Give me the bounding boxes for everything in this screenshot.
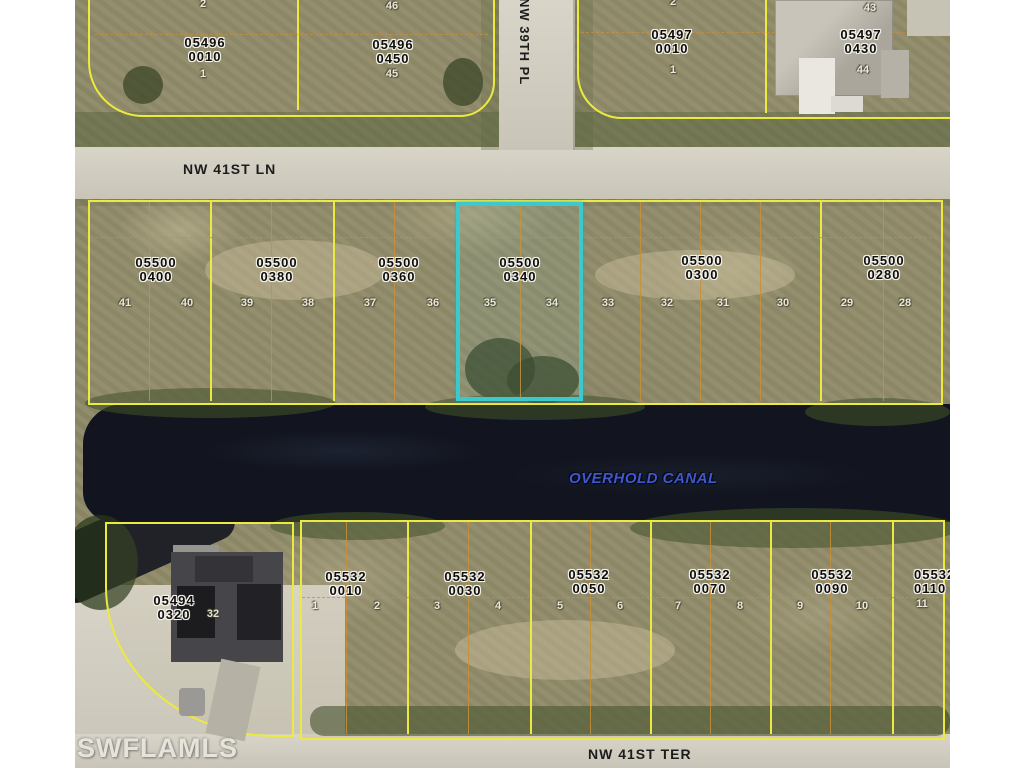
walkway-top-right (831, 96, 863, 112)
lot-number: 28 (890, 297, 920, 309)
house-roof-section-dark-2 (237, 584, 281, 640)
lot-number: 41 (110, 297, 140, 309)
lot-line (640, 202, 641, 401)
canal-label: OVERHOLD CANAL (569, 470, 718, 487)
parcel-line (892, 522, 894, 734)
parcel-line (770, 522, 772, 734)
car-bottom-left (179, 688, 205, 716)
lot-line (346, 522, 347, 734)
lot-number: 11 (907, 598, 937, 610)
lot-number: 43 (855, 2, 885, 14)
parcel-label: 054960010 (165, 36, 245, 64)
parcel-label: 055320090 (792, 568, 872, 596)
lot-line (700, 202, 701, 401)
parcel-label: 054970010 (632, 28, 712, 56)
lot-line (590, 522, 591, 734)
lot-number: 2 (188, 0, 218, 10)
lot-number: 1 (188, 68, 218, 80)
lot-number: 45 (377, 68, 407, 80)
lot-number: 7 (663, 600, 693, 612)
lot-number: 36 (418, 297, 448, 309)
house-roof-section-mid (195, 556, 253, 582)
parcel-line (650, 522, 652, 734)
lot-number: 2 (658, 0, 688, 8)
lot-line (830, 522, 831, 734)
lot-line-top-left-divider (297, 0, 299, 110)
setback-line-top-left (95, 34, 488, 35)
road-nw-39th-pl (499, 0, 575, 150)
lot-line (883, 202, 884, 401)
setback-line-bottom (302, 597, 939, 598)
lot-line (149, 202, 150, 401)
parcel-label: 054970430 (821, 28, 901, 56)
lot-number: 5 (545, 600, 575, 612)
street-label-nw-41st-ln: NW 41ST LN (183, 161, 276, 177)
mls-watermark: SWFLAMLS (77, 733, 238, 764)
block-top-left (88, 0, 495, 117)
parcel-line (210, 202, 212, 401)
lot-number: 37 (355, 297, 385, 309)
lot-number: 9 (785, 600, 815, 612)
lot-line (271, 202, 272, 401)
lot-line (760, 202, 761, 401)
parcel-line (407, 522, 409, 734)
street-label-nw-41st-ter: NW 41ST TER (588, 746, 692, 762)
lot-number: 35 (475, 297, 505, 309)
parcel-label: 054960450 (353, 38, 433, 66)
lot-number: 31 (708, 297, 738, 309)
aerial-parcel-map: 054960010 054960450 054970010 054970430 … (0, 0, 1024, 768)
lot-number: 46 (377, 0, 407, 12)
lot-number: 1 (300, 600, 330, 612)
parcel-label-clipped: 055320110 (914, 568, 950, 596)
strip-bottom-parcels (300, 520, 945, 740)
lot-number: 6 (605, 600, 635, 612)
lot-number: 4 (483, 600, 513, 612)
lot-line (394, 202, 395, 401)
parcel-label: 055000300 (662, 254, 742, 282)
lot-number: 8 (725, 600, 755, 612)
parcel-line (530, 522, 532, 734)
aerial-photo: 054960010 054960450 054970010 054970430 … (75, 0, 950, 768)
lot-number: 44 (848, 64, 878, 76)
lot-line (710, 522, 711, 734)
lot-number: 38 (293, 297, 323, 309)
lot-line (468, 522, 469, 734)
parcel-label: 055320070 (670, 568, 750, 596)
parcel-label: 055000360 (359, 256, 439, 284)
parcel-label: 055320010 (306, 570, 386, 598)
parcel-line (820, 202, 822, 401)
lot-number: 32 (652, 297, 682, 309)
street-label-nw-39th-pl: NW 39TH PL (517, 0, 532, 108)
lot-number: 32 (198, 608, 228, 620)
lot-line-top-right-divider (765, 0, 767, 113)
lot-number: 30 (768, 297, 798, 309)
lot-number: 2 (362, 600, 392, 612)
parcel-label: 055000280 (844, 254, 924, 282)
parcel-label: 055320050 (549, 568, 629, 596)
lot-number: 39 (232, 297, 262, 309)
parcel-label: 055320030 (425, 570, 505, 598)
house-wing-top-right (881, 50, 909, 98)
lot-number: 29 (832, 297, 862, 309)
parcel-label: 055000400 (116, 256, 196, 284)
lot-number: 34 (537, 297, 567, 309)
parcel-label-highlighted: 055000340 (480, 256, 560, 284)
lot-number: 33 (593, 297, 623, 309)
lot-number: 3 (422, 600, 452, 612)
driveway-top-right (799, 58, 835, 114)
lot-number: 1 (658, 64, 688, 76)
lot-number: 10 (847, 600, 877, 612)
driveway-corner-patch (907, 0, 950, 36)
parcel-label: 055000380 (237, 256, 317, 284)
parcel-line (333, 202, 335, 401)
lot-number: 40 (172, 297, 202, 309)
